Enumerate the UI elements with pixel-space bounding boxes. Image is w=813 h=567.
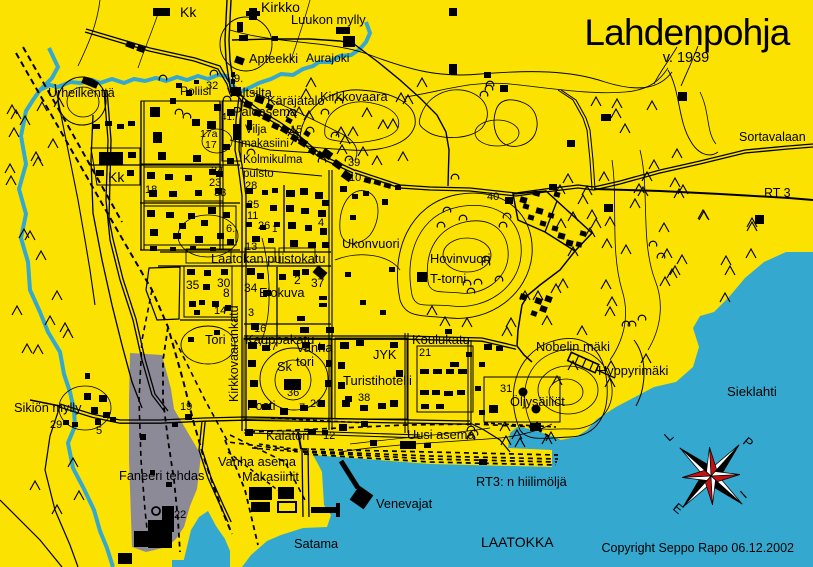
svg-text:Poliisi: Poliisi <box>180 84 211 98</box>
svg-text:Kirkkovaara: Kirkkovaara <box>320 89 388 104</box>
svg-text:Sk: Sk <box>277 359 293 374</box>
svg-text:36: 36 <box>287 387 299 399</box>
svg-text:Turistihotelli: Turistihotelli <box>343 373 412 388</box>
svg-text:33: 33 <box>214 187 226 199</box>
svg-text:24: 24 <box>211 165 223 177</box>
svg-text:Copyright Seppo Rapo 06.12.200: Copyright Seppo Rapo 06.12.2002 <box>601 541 794 555</box>
svg-text:Kirkkovaarankatu: Kirkkovaarankatu <box>227 305 241 402</box>
svg-text:Laatokan puistokatu: Laatokan puistokatu <box>211 251 326 266</box>
svg-text:Elokuva: Elokuva <box>259 285 305 300</box>
svg-text:38: 38 <box>358 392 370 404</box>
svg-text:26: 26 <box>258 220 270 232</box>
svg-text:Sikiön mylly: Sikiön mylly <box>14 400 82 415</box>
svg-text:Kalatori: Kalatori <box>266 428 309 443</box>
svg-text:17: 17 <box>205 139 217 151</box>
svg-text:7: 7 <box>299 402 305 414</box>
svg-text:Aurajoki: Aurajoki <box>306 51 349 65</box>
svg-text:Koulukatu: Koulukatu <box>412 332 470 347</box>
svg-text:Uusi asema: Uusi asema <box>407 427 475 442</box>
svg-text:29: 29 <box>50 419 62 431</box>
svg-text:8: 8 <box>223 286 230 300</box>
svg-text:Nobelin mäki: Nobelin mäki <box>536 339 610 354</box>
svg-text:40: 40 <box>487 191 499 203</box>
svg-text:Posti: Posti <box>247 398 275 413</box>
svg-text:LAATOKKA: LAATOKKA <box>481 534 554 550</box>
svg-text:3: 3 <box>248 307 254 319</box>
svg-text:Apteekki: Apteekki <box>249 51 298 66</box>
svg-text:Vältsilta: Vältsilta <box>227 85 273 100</box>
svg-text:18: 18 <box>145 184 157 196</box>
svg-text:Venevajat: Venevajat <box>376 496 433 511</box>
svg-text:Hyppyrimäki: Hyppyrimäki <box>598 363 668 378</box>
svg-text:Sortavalaan: Sortavalaan <box>739 130 806 144</box>
svg-text:12: 12 <box>323 430 335 442</box>
svg-text:Vilja: Vilja <box>245 124 267 136</box>
svg-text:27: 27 <box>265 341 277 353</box>
svg-text:Kk: Kk <box>108 169 125 185</box>
svg-text:41.: 41. <box>221 112 235 123</box>
svg-text:15: 15 <box>290 124 302 136</box>
svg-text:20: 20 <box>310 398 322 410</box>
svg-text:28: 28 <box>245 180 257 192</box>
svg-text:Hovinvuori: Hovinvuori <box>430 251 490 266</box>
svg-text:Urheilkenttä: Urheilkenttä <box>48 86 115 100</box>
svg-text:34: 34 <box>244 281 258 295</box>
svg-text:11: 11 <box>247 210 258 222</box>
svg-text:5: 5 <box>96 425 102 437</box>
svg-text:Vanha asema: Vanha asema <box>218 454 297 469</box>
svg-text:2: 2 <box>294 273 301 287</box>
svg-text:4: 4 <box>318 217 324 229</box>
svg-text:Sieklahti: Sieklahti <box>727 384 777 399</box>
svg-text:makasiini: makasiini <box>241 138 289 150</box>
svg-text:Faneeri tehdas: Faneeri tehdas <box>119 468 204 483</box>
svg-text:9.: 9. <box>234 73 243 85</box>
svg-text:21: 21 <box>419 347 431 359</box>
svg-text:Kolmikulma: Kolmikulma <box>243 154 303 166</box>
svg-text:22: 22 <box>174 509 186 521</box>
svg-text:T-torni: T-torni <box>430 271 466 286</box>
svg-text:Öljysäiliöt: Öljysäiliöt <box>510 394 565 409</box>
svg-text:Lahdenpohja: Lahdenpohja <box>584 12 790 53</box>
svg-text:Ukonvuori: Ukonvuori <box>342 236 400 251</box>
svg-text:RT 3: RT 3 <box>764 186 791 200</box>
svg-text:14: 14 <box>214 305 226 317</box>
svg-text:Vanha: Vanha <box>296 340 333 355</box>
svg-text:JYK: JYK <box>373 347 397 362</box>
svg-text:Luukon mylly: Luukon mylly <box>291 12 366 27</box>
svg-text:Paloasema: Paloasema <box>233 104 298 119</box>
svg-text:Kk: Kk <box>180 4 197 20</box>
svg-text:10: 10 <box>349 172 361 184</box>
svg-text:39: 39 <box>348 157 360 169</box>
svg-text:tori: tori <box>296 354 314 369</box>
svg-text:puisto: puisto <box>243 168 274 180</box>
svg-text:Makasiinit: Makasiinit <box>242 469 299 484</box>
svg-text:Satama: Satama <box>294 536 339 551</box>
svg-text:Tori: Tori <box>205 332 226 347</box>
svg-text:37: 37 <box>311 276 325 290</box>
svg-text:19: 19 <box>180 401 192 413</box>
svg-text:6.: 6. <box>226 223 235 235</box>
svg-text:v. 1939: v. 1939 <box>663 50 710 66</box>
svg-text:RT3: n hiilimöljä: RT3: n hiilimöljä <box>476 474 568 489</box>
svg-text:35: 35 <box>186 278 200 292</box>
svg-text:1: 1 <box>272 224 278 235</box>
